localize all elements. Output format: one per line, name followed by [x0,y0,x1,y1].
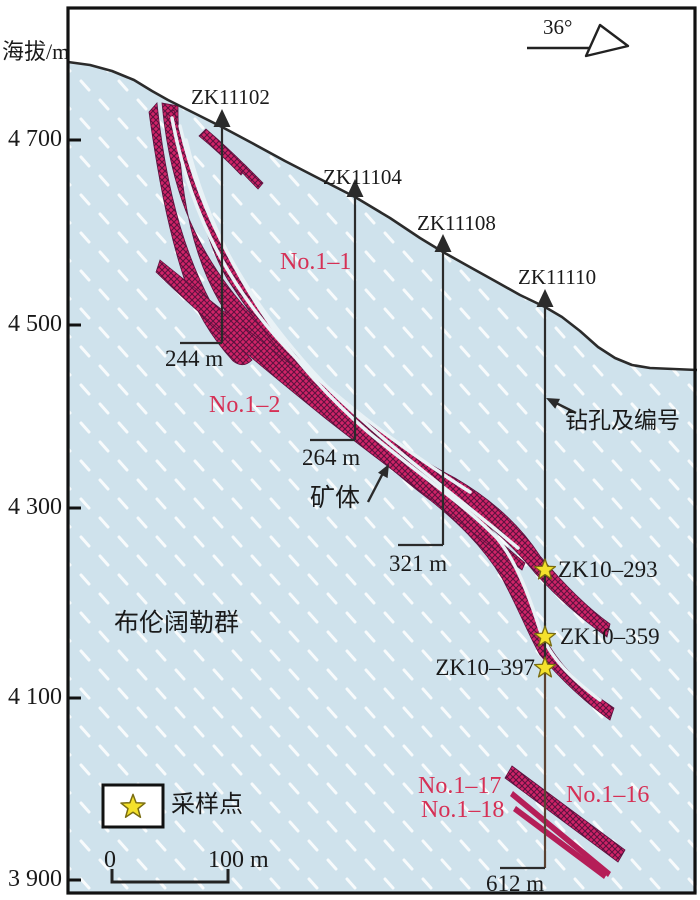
ore-label-no1-16: No.1–16 [566,783,649,808]
axis-tick-4300: 4 300 [0,495,62,520]
axis-tick-4100: 4 100 [0,685,62,710]
north-bearing-label: 36° [543,16,572,38]
drill-label-zk11102: ZK11102 [191,86,270,108]
rock-group-label: 布伦阔勒群 [114,611,239,637]
sample-label-zk10-397: ZK10–397 [420,656,535,680]
ore-label-no1-1: No.1–1 [280,250,351,275]
drill-arrow-zk11108 [435,234,452,252]
cross-section-figure: 海拔/m 4 700 4 500 4 300 4 100 3 900 36° Z… [0,0,700,900]
depth-label-zk11108: 321 m [389,552,447,576]
drill-label-zk11104: ZK11104 [323,166,402,188]
axis-tick-3900: 3 900 [0,867,62,892]
legend-sample-point-label: 采样点 [171,793,243,818]
drillhole-callout-label: 钻孔及编号 [565,409,680,433]
ore-body-callout-label: 矿体 [310,486,360,512]
depth-label-zk11102: 244 m [165,347,223,371]
axis-tick-4500: 4 500 [0,312,62,337]
sample-label-zk10-293: ZK10–293 [558,558,658,582]
drill-arrow-zk11110 [537,289,554,307]
sample-label-zk10-359: ZK10–359 [560,625,660,649]
drill-label-zk11110: ZK11110 [518,266,596,288]
axis-tick-4700: 4 700 [0,127,62,152]
drill-arrow-zk11102 [214,109,231,127]
depth-label-zk11110: 612 m [486,872,544,896]
scale-zero-label: 0 [104,848,116,873]
ore-label-no1-17: No.1–17 [418,774,501,799]
axis-title: 海拔/m [2,40,69,63]
legend [103,785,163,827]
depth-label-zk11104: 264 m [302,446,360,470]
drill-label-zk11108: ZK11108 [417,212,496,234]
ore-label-no1-2: No.1–2 [209,393,280,418]
ore-label-no1-18: No.1–18 [421,798,504,823]
scale-max-label: 100 m [208,848,269,873]
